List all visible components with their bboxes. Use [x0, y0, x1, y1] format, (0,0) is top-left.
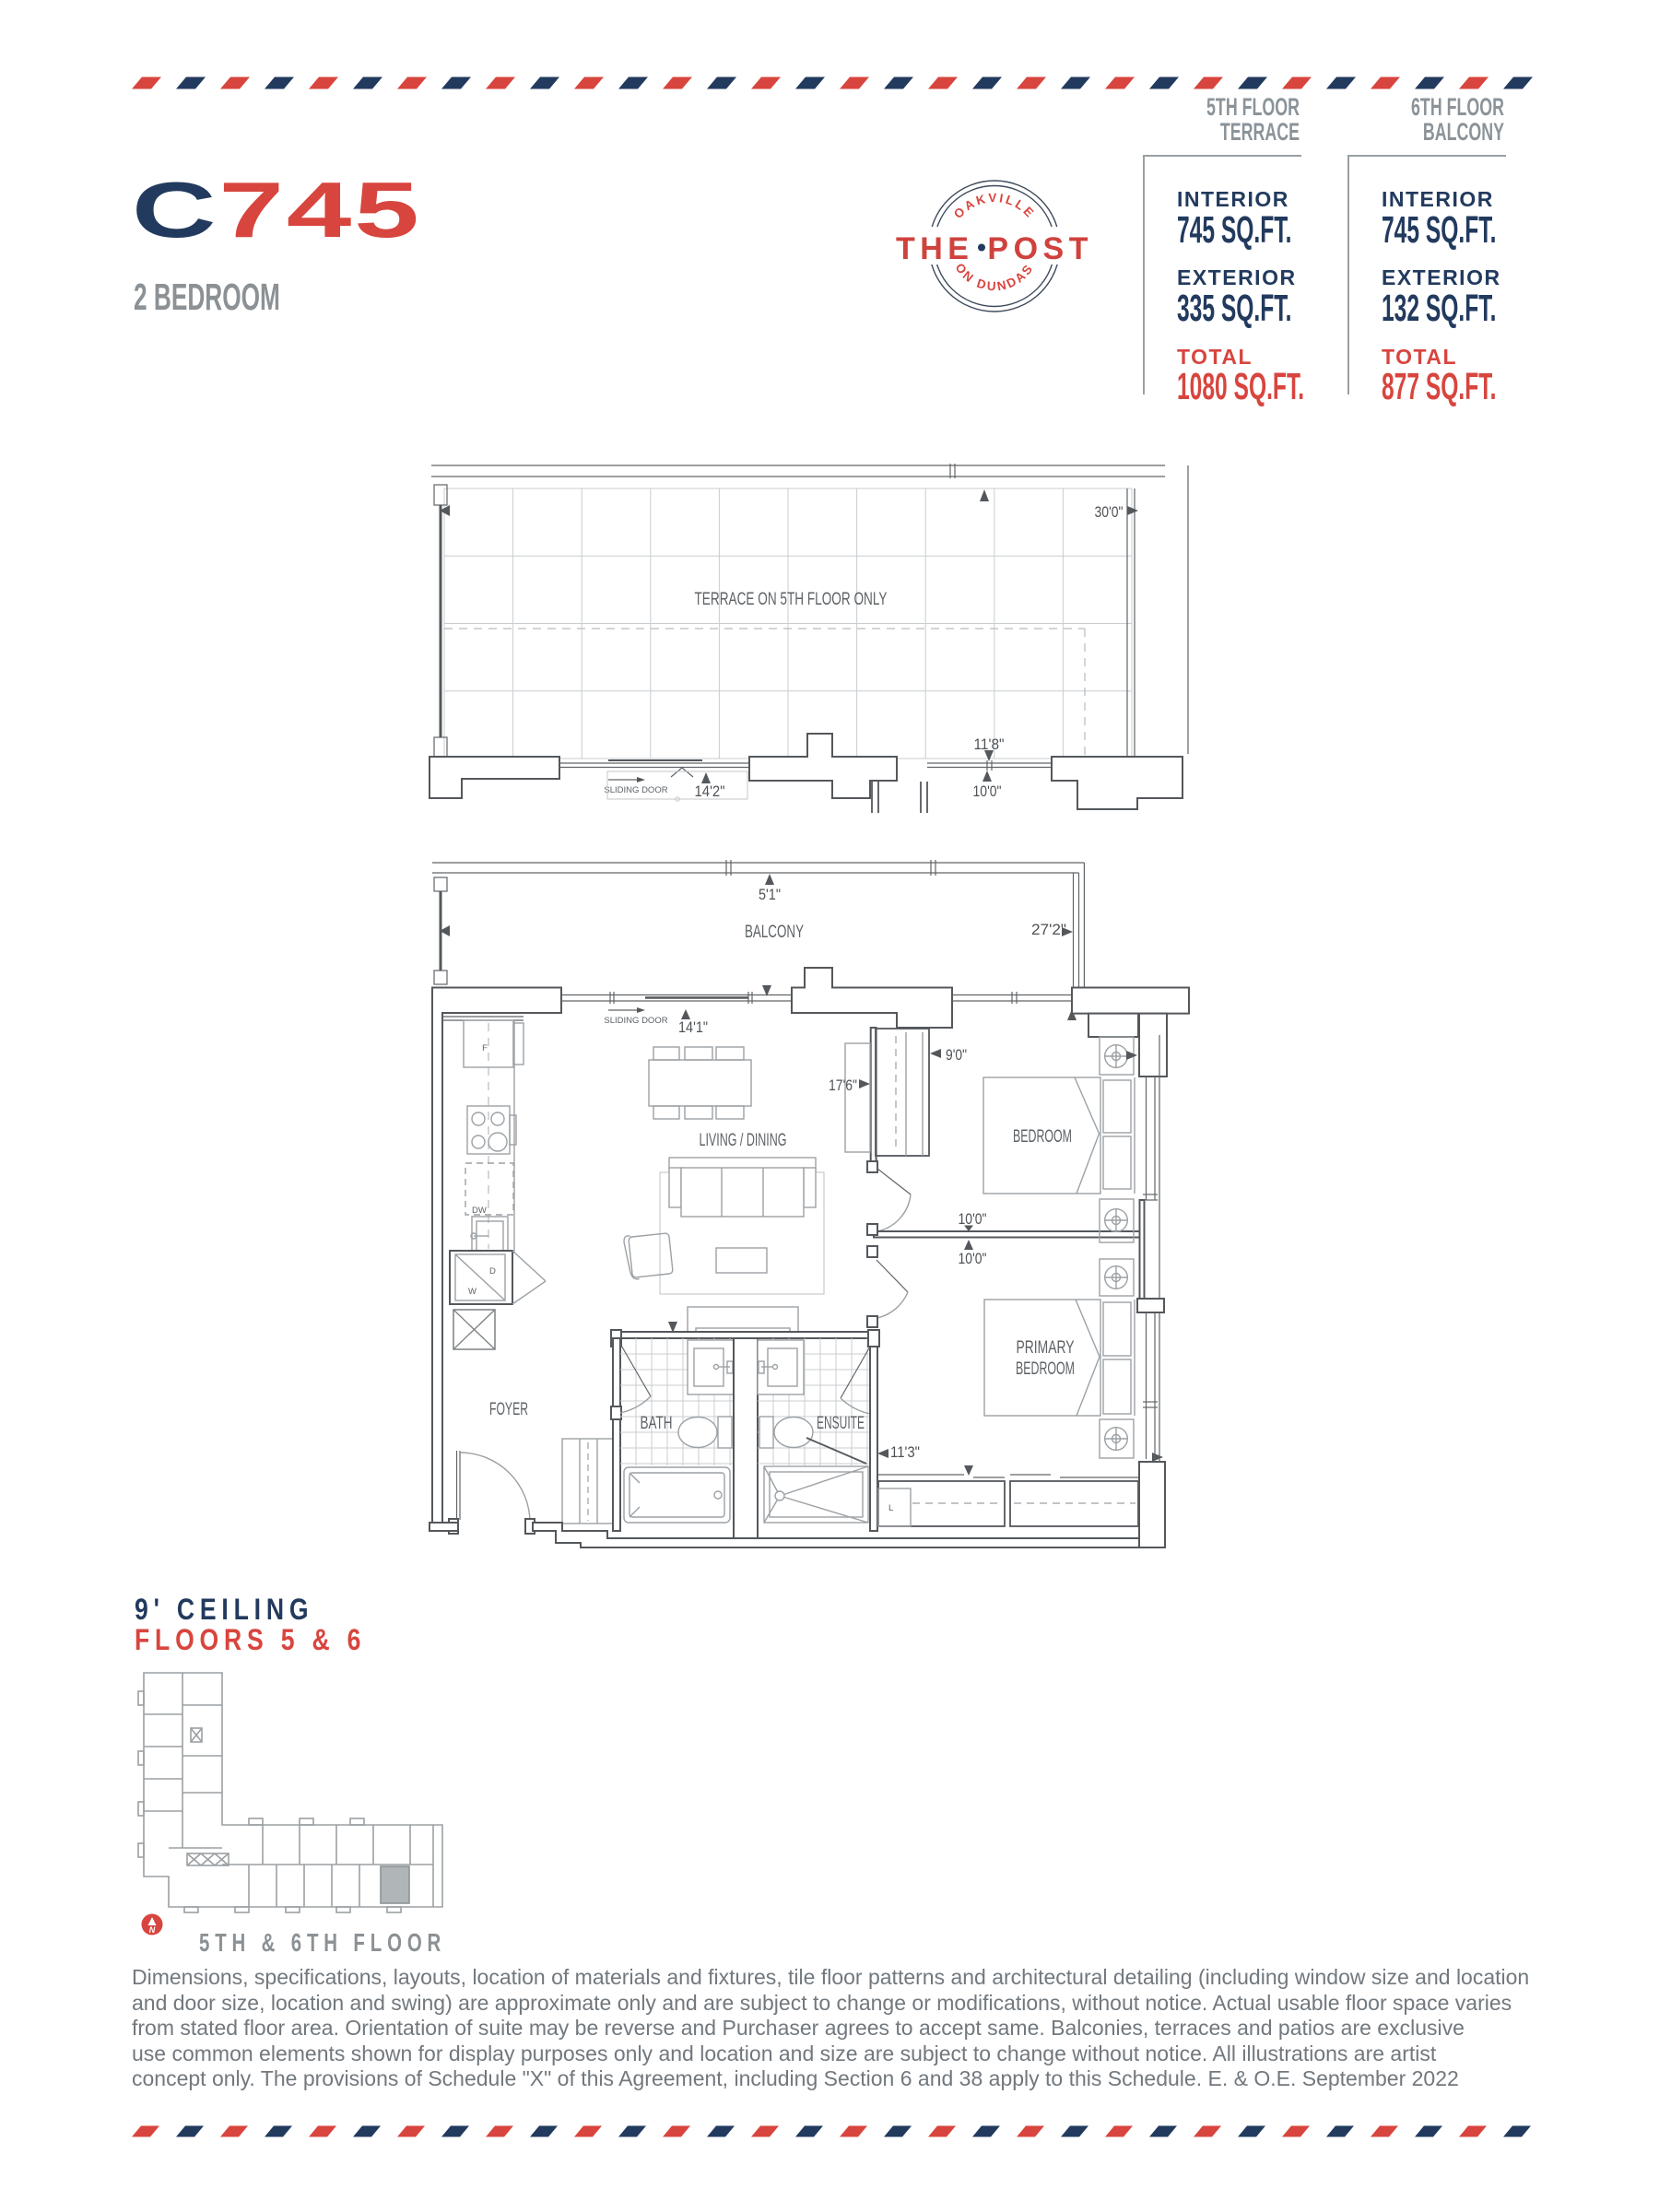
svg-text:SLIDING DOOR: SLIDING DOOR: [604, 1016, 667, 1026]
svg-text:BEDROOM: BEDROOM: [1013, 1127, 1072, 1147]
svg-text:BEDROOM: BEDROOM: [1016, 1359, 1075, 1379]
svg-text:BATH: BATH: [641, 1414, 673, 1433]
svg-text:11'3": 11'3": [890, 1443, 920, 1461]
svg-text:THE POST: THE POST: [896, 231, 1093, 266]
svg-text:5'1": 5'1": [759, 886, 781, 903]
svg-text:10'0": 10'0": [959, 1210, 987, 1228]
svg-text:N: N: [149, 1925, 156, 1935]
svg-text:L: L: [888, 1503, 893, 1513]
svg-text:FOYER: FOYER: [489, 1400, 528, 1419]
svg-text:30'0": 30'0": [1095, 503, 1124, 521]
svg-text:14'1": 14'1": [678, 1018, 708, 1036]
svg-text:F: F: [482, 1043, 488, 1053]
svg-text:14'2": 14'2": [695, 782, 725, 800]
svg-text:LIVING / DINING: LIVING / DINING: [700, 1131, 787, 1150]
svg-text:D: D: [489, 1266, 496, 1277]
svg-text:DW: DW: [472, 1206, 487, 1216]
svg-text:17'6": 17'6": [829, 1077, 857, 1094]
svg-text:OAKVILLE: OAKVILLE: [951, 191, 1038, 221]
svg-text:27'2": 27'2": [1031, 921, 1066, 938]
svg-text:W: W: [468, 1287, 477, 1297]
svg-text:SLIDING DOOR: SLIDING DOOR: [604, 785, 667, 795]
svg-text:TERRACE ON 5TH FLOOR ONLY: TERRACE ON 5TH FLOOR ONLY: [695, 590, 888, 609]
svg-text:ENSUITE: ENSUITE: [817, 1414, 865, 1433]
svg-text:10'0": 10'0": [973, 782, 1002, 800]
svg-text:BALCONY: BALCONY: [745, 923, 804, 942]
svg-text:9'0": 9'0": [946, 1046, 967, 1064]
svg-text:PRIMARY: PRIMARY: [1017, 1338, 1075, 1358]
svg-text:10'0": 10'0": [959, 1250, 987, 1267]
